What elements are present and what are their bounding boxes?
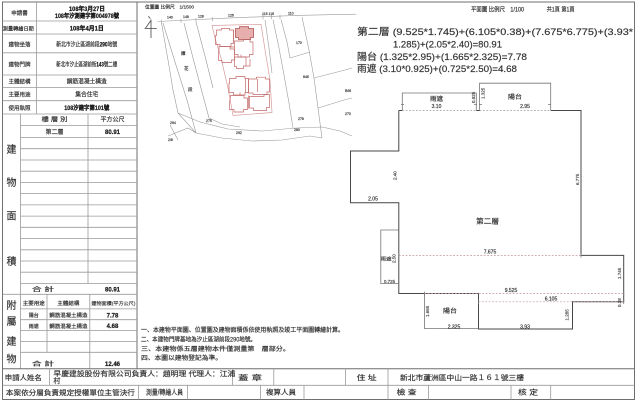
svg-text:1.665: 1.665	[425, 305, 430, 317]
svg-text:建物面積(平方公尺): 建物面積(平方公尺)	[91, 300, 136, 307]
svg-text:1.745: 1.745	[617, 267, 622, 279]
svg-text:三、本建物係五層建物本件僅測量第 層部分。: 三、本建物係五層建物本件僅測量第 層部分。	[141, 345, 290, 353]
svg-text:使用執照: 使用執照	[8, 104, 31, 112]
svg-text:陽台: 陽台	[443, 307, 457, 315]
svg-text:合 計: 合 計	[32, 286, 54, 294]
svg-text:126: 126	[228, 13, 234, 17]
svg-text:早慶建設股份有限公司負責人：趙明理 代理人：江浦: 早慶建設股份有限公司負責人：趙明理 代理人：江浦	[53, 369, 235, 378]
svg-text:建物坐落: 建物坐落	[8, 41, 31, 49]
svg-text:0.38: 0.38	[617, 298, 622, 307]
svg-text:建物門牌: 建物門牌	[8, 61, 31, 69]
svg-text:110: 110	[288, 12, 294, 16]
svg-text:雨遮: 雨遮	[29, 323, 39, 330]
svg-text:村: 村	[53, 376, 60, 385]
svg-text:275: 275	[206, 119, 212, 123]
svg-text:陽台: 陽台	[29, 312, 39, 319]
svg-text:2.05: 2.05	[368, 196, 378, 202]
svg-text:118 116: 118 116	[262, 12, 274, 16]
svg-text:花: 花	[184, 65, 189, 72]
svg-text:一、本建物平面圖、位置圖及建物面積係依使用執照及竣工平面圖轉: 一、本建物平面圖、位置圖及建物面積係依使用執照及竣工平面圖轉繪計算。	[141, 326, 344, 334]
svg-text:集合住宅: 集合住宅	[75, 91, 98, 99]
svg-text:7.78: 7.78	[107, 313, 119, 319]
svg-text:物: 物	[7, 353, 17, 366]
svg-text:9.525: 9.525	[505, 288, 518, 294]
svg-text:主體結構: 主體結構	[57, 300, 79, 307]
svg-text:140: 140	[167, 16, 173, 20]
svg-text:第二層 (9.525*1.745)+(6.105*0.38): 第二層 (9.525*1.745)+(6.105*0.38)+(7.675*6.…	[357, 26, 633, 38]
svg-text:建: 建	[7, 143, 17, 156]
svg-text:2.40: 2.40	[392, 171, 397, 180]
svg-text:陽台 (1.325*2.95)+(1.665*2.325)=: 陽台 (1.325*2.95)+(1.665*2.325)=7.78	[357, 51, 527, 63]
svg-text:雨遮: 雨遮	[430, 95, 443, 103]
svg-text:測量/轉繪人員: 測量/轉繪人員	[146, 388, 183, 397]
svg-text:12.46: 12.46	[105, 362, 121, 368]
svg-text:270: 270	[345, 112, 351, 116]
svg-text:段: 段	[188, 86, 193, 93]
svg-text:108年3月27日: 108年3月27日	[69, 5, 105, 13]
svg-text:積: 積	[7, 255, 17, 268]
svg-text:80.91: 80.91	[105, 288, 121, 294]
svg-text:4.68: 4.68	[107, 324, 119, 330]
svg-text:0.925: 0.925	[471, 91, 476, 103]
svg-text:蓋 章: 蓋 章	[238, 373, 262, 382]
svg-text:1.285)+(2.05*2.40)=80.91: 1.285)+(2.05*2.40)=80.91	[393, 40, 502, 51]
svg-text:屬: 屬	[7, 316, 17, 328]
svg-text:四、本圖以建物登記為準。: 四、本圖以建物登記為準。	[141, 354, 222, 362]
svg-text:108年4月1日: 108年4月1日	[70, 25, 104, 33]
svg-text:2.95: 2.95	[520, 104, 530, 110]
svg-text:846: 846	[303, 75, 309, 79]
svg-text:鋼筋混凝土構造: 鋼筋混凝土構造	[67, 78, 107, 86]
svg-text:建: 建	[7, 335, 17, 348]
svg-text:B96: B96	[345, 89, 351, 93]
svg-text:物: 物	[7, 176, 17, 189]
svg-text:278: 278	[298, 117, 304, 121]
svg-text:申請書: 申請書	[11, 9, 28, 17]
svg-text:附: 附	[7, 299, 17, 312]
svg-text:新北市汐止區湖前段290地號: 新北市汐止區湖前段290地號	[56, 41, 117, 49]
svg-text:3.10: 3.10	[432, 104, 442, 110]
svg-text:檢 查: 檢 查	[397, 388, 417, 397]
svg-text:280: 280	[294, 128, 300, 132]
svg-text:住 址: 住 址	[357, 373, 377, 382]
svg-text:複算人員: 複算人員	[266, 388, 296, 397]
svg-text:3.93: 3.93	[520, 325, 530, 331]
svg-text:雨遮: 雨遮	[381, 256, 393, 263]
svg-text:平面圖 比例尺 1/100: 平面圖 比例尺 1/100	[471, 6, 525, 14]
svg-text:2.325: 2.325	[448, 325, 461, 331]
svg-text:鋼筋混凝土構造: 鋼筋混凝土構造	[49, 323, 87, 330]
svg-text:主體結構: 主體結構	[8, 78, 31, 86]
svg-text:294: 294	[170, 121, 176, 125]
svg-text:1.325: 1.325	[480, 87, 485, 99]
svg-text:7.675: 7.675	[484, 249, 497, 255]
svg-text:申請人姓名: 申請人姓名	[5, 373, 42, 382]
svg-text:面: 面	[7, 212, 17, 223]
svg-text:80.91: 80.91	[105, 130, 121, 136]
svg-text:陽台: 陽台	[508, 93, 522, 101]
svg-text:位置圖 比例尺 1/1500: 位置圖 比例尺 1/1500	[145, 4, 194, 11]
svg-text:樟: 樟	[181, 50, 186, 57]
svg-text:樓 層 別: 樓 層 別	[42, 116, 68, 124]
svg-text:6.105: 6.105	[545, 297, 558, 303]
svg-text:108汐建字第101號: 108汐建字第101號	[64, 104, 109, 112]
svg-text:6.775: 6.775	[575, 173, 580, 185]
svg-text:測量轉繪日期: 測量轉繪日期	[3, 26, 34, 33]
svg-text:128: 128	[198, 14, 204, 18]
svg-text:平方公尺: 平方公尺	[101, 116, 125, 124]
svg-text:170: 170	[296, 41, 302, 45]
svg-text:共1頁 第1頁: 共1頁 第1頁	[547, 5, 575, 13]
svg-text:108年汐測建字第004978號: 108年汐測建字第004978號	[55, 12, 119, 20]
svg-text:新北市汐止區湖前街143號二樓: 新北市汐止區湖前街143號二樓	[56, 61, 117, 69]
svg-text:第二層: 第二層	[476, 217, 499, 226]
svg-text:雨遮 (3.10*0.925)+(0.725*2.50)=4: 雨遮 (3.10*0.925)+(0.725*2.50)=4.68	[357, 63, 517, 75]
svg-text:2.50: 2.50	[392, 254, 397, 263]
svg-text:新北市蘆洲區中山一路１６１號三樓: 新北市蘆洲區中山一路１６１號三樓	[400, 373, 524, 382]
svg-text:本案依分層負責規定授權單位主管決行: 本案依分層負責規定授權單位主管決行	[6, 388, 135, 397]
svg-text:核 定: 核 定	[518, 388, 538, 397]
svg-text:292: 292	[236, 131, 242, 135]
svg-text:148: 148	[183, 15, 189, 19]
svg-text:鋼筋混凝土構造: 鋼筋混凝土構造	[49, 312, 87, 319]
svg-text:二、本建物門牌基地為汐止區湖前段290地號。: 二、本建物門牌基地為汐止區湖前段290地號。	[141, 336, 256, 344]
svg-text:1.285: 1.285	[565, 309, 570, 321]
svg-text:主要用途: 主要用途	[8, 91, 31, 99]
svg-text:2/8: 2/8	[168, 138, 173, 142]
svg-text:第二層: 第二層	[45, 128, 63, 136]
svg-text:合 計: 合 計	[32, 360, 54, 368]
svg-text:0.725: 0.725	[384, 279, 396, 284]
svg-text:主要用途: 主要用途	[23, 300, 45, 307]
